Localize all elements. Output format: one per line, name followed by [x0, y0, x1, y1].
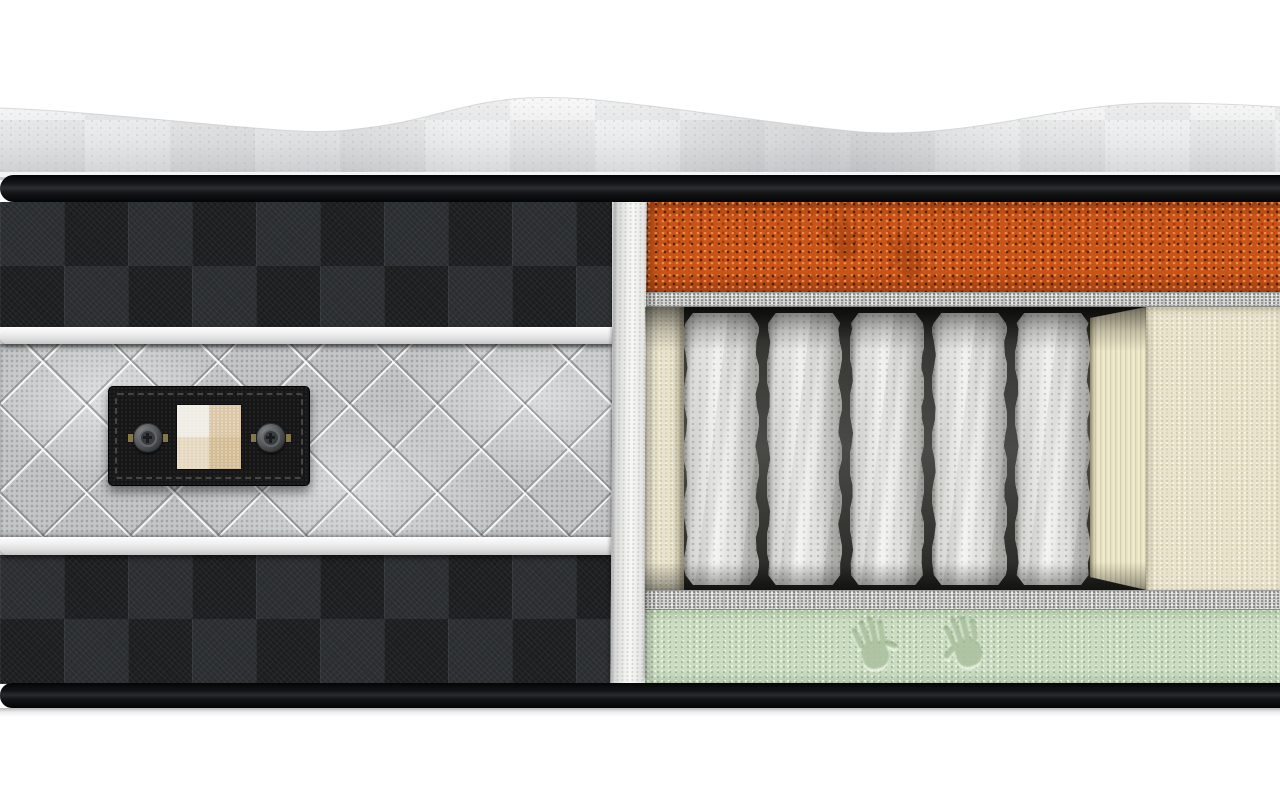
- side-panel-checker-top: [0, 202, 612, 327]
- label-button-left: [133, 423, 163, 453]
- button-screw-icon: [146, 433, 149, 443]
- spring-cavity: [645, 307, 1280, 590]
- pocket-spring: [767, 313, 842, 585]
- pocket-spring: [850, 313, 925, 585]
- encasement-rail-left: [645, 307, 684, 590]
- layer-felt-pad-top: [645, 292, 1280, 307]
- top-border-tape: [0, 175, 1280, 202]
- button-screw-icon: [269, 433, 272, 443]
- button-clip-icon: [251, 434, 256, 442]
- encasement-rail-corner: [1090, 307, 1146, 590]
- floor-shadow: [0, 708, 1280, 717]
- mattress-cutaway-scene: [0, 0, 1280, 800]
- layer-comfort-foam: [645, 202, 1280, 292]
- handprints-base-foam: [645, 610, 1280, 684]
- internal-layers: [645, 202, 1280, 684]
- handprints-comfort-foam: [645, 202, 1280, 292]
- cover-cut-edge: [610, 202, 646, 684]
- side-panel-piping-top: [0, 327, 612, 344]
- handprints-orange-group: [817, 206, 929, 282]
- layer-base-foam: [645, 610, 1280, 684]
- encasement-rail-right: [1146, 307, 1280, 590]
- quilted-top-surface: [0, 0, 1280, 185]
- pocket-spring: [684, 313, 759, 585]
- handprints-green-group: [849, 611, 989, 674]
- pocket-springs: [684, 313, 1090, 585]
- pocket-spring: [1015, 313, 1090, 585]
- layer-felt-pad-bottom: [645, 590, 1280, 610]
- side-panel-checker-bottom: [0, 555, 612, 684]
- button-clip-icon: [128, 434, 133, 442]
- brand-label: [108, 386, 310, 486]
- swatch-texture: [177, 405, 241, 469]
- label-button-right: [256, 423, 286, 453]
- pocket-spring: [932, 313, 1007, 585]
- side-panel-piping-bottom: [0, 537, 612, 555]
- button-clip-icon: [163, 434, 168, 442]
- top-cover-shading: [0, 97, 1280, 180]
- base-border-tape: [0, 683, 1280, 708]
- side-panel: [0, 202, 612, 684]
- button-clip-icon: [286, 434, 291, 442]
